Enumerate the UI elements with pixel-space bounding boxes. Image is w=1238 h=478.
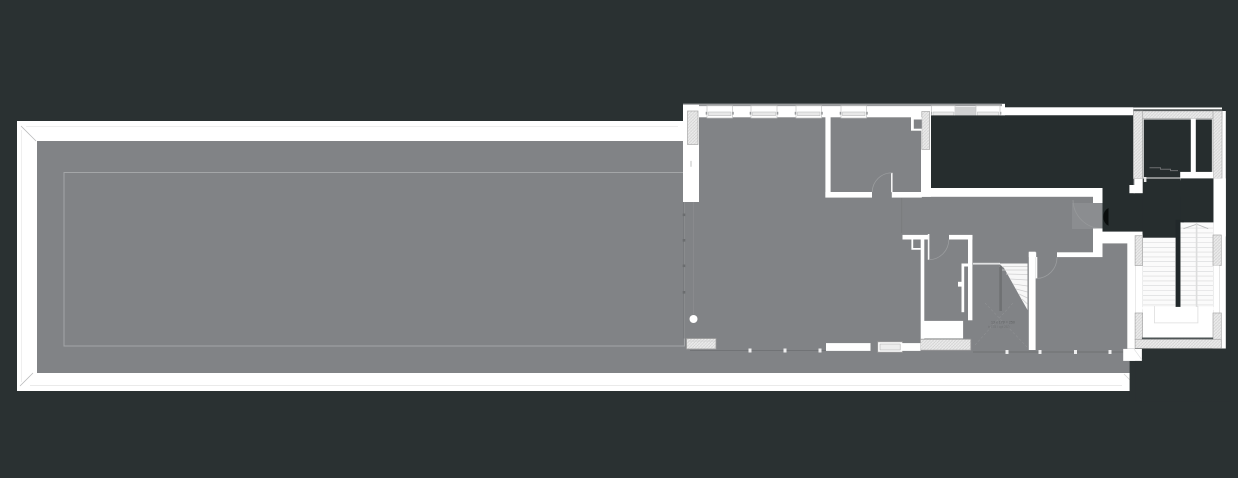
- svg-text:tr 178 / opt 250: tr 178 / opt 250: [988, 325, 1010, 329]
- svg-text:13 x 178 = 250: 13 x 178 = 250: [991, 321, 1015, 325]
